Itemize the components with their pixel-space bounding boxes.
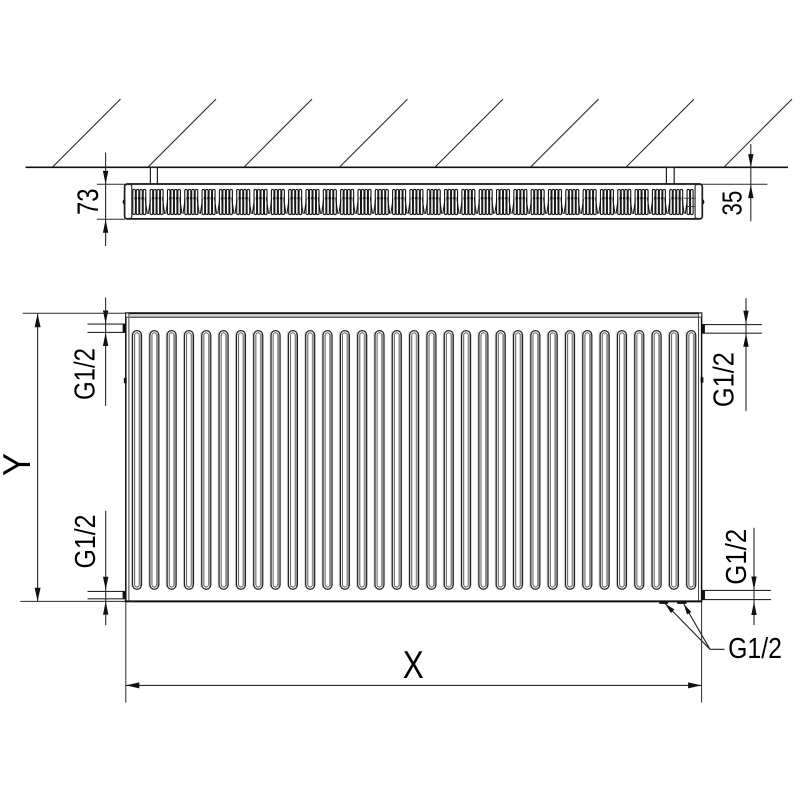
svg-text:35: 35 [717,191,748,216]
svg-text:Y: Y [0,453,39,476]
svg-text:G1/2: G1/2 [709,352,741,407]
svg-text:G1/2: G1/2 [728,633,782,665]
svg-text:G1/2: G1/2 [70,348,102,400]
svg-text:73: 73 [72,189,105,216]
svg-text:G1/2: G1/2 [721,529,753,585]
svg-text:X: X [403,644,424,687]
svg-text:G1/2: G1/2 [70,515,102,569]
